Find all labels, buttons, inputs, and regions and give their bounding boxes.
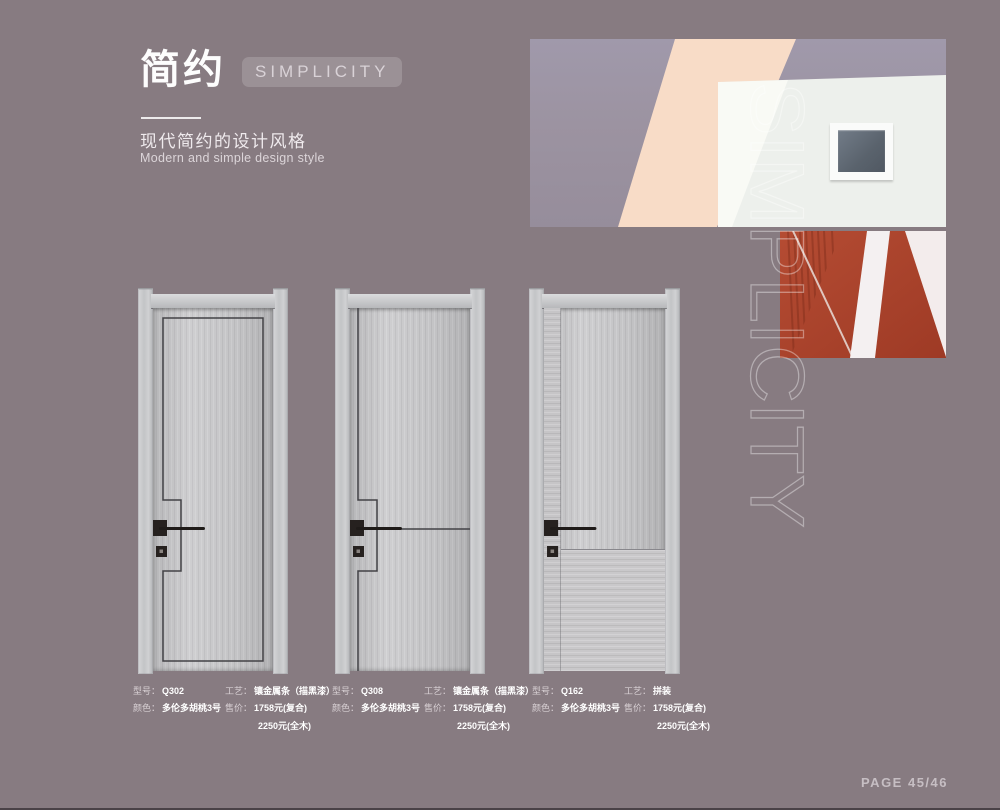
door-frame-right <box>665 288 680 674</box>
door-frame-right <box>470 288 485 674</box>
craft-label: 工艺： <box>624 686 653 697</box>
model-value: Q302 <box>162 686 225 697</box>
price-solid: 2250元(全木) <box>254 721 338 732</box>
page-number: PAGE 45/46 <box>853 775 948 790</box>
door-frame-head <box>151 294 275 308</box>
door-handle-graphic <box>544 308 665 671</box>
product-info-q302: 型号： Q302 工艺： 镶金属条（描黑漆） 颜色： 多伦多胡桃3号 售价： 1… <box>133 686 338 732</box>
door-frame-right <box>273 288 288 674</box>
door-image-q162 <box>529 288 680 674</box>
architecture-photo-main <box>530 39 946 227</box>
door-frame-head <box>542 294 667 308</box>
door-frame-left <box>529 288 544 674</box>
color-label: 颜色： <box>332 703 361 714</box>
door-leaf <box>544 308 665 671</box>
door-inlay-graphic <box>350 308 470 671</box>
craft-label: 工艺： <box>424 686 453 697</box>
color-label: 颜色： <box>133 703 162 714</box>
catalog-page: 简约 SIMPLICITY 现代简约的设计风格 Modern and simpl… <box>0 0 1000 810</box>
model-value: Q308 <box>361 686 424 697</box>
square-window <box>830 123 893 180</box>
page-title: 简约 <box>140 50 226 90</box>
door-image-q302 <box>138 288 288 674</box>
model-label: 型号： <box>332 686 361 697</box>
model-label: 型号： <box>532 686 561 697</box>
price-composite: 1758元(复合) <box>453 703 537 714</box>
door-handle-lever <box>356 527 402 530</box>
door-leaf <box>153 308 273 671</box>
craft-value: 镶金属条（描黑漆） <box>254 686 338 697</box>
door-image-q308 <box>335 288 485 674</box>
craft-value: 镶金属条（描黑漆） <box>453 686 537 697</box>
craft-value: 拼装 <box>653 686 737 697</box>
color-value: 多伦多胡桃3号 <box>162 703 225 714</box>
price-composite: 1758元(复合) <box>254 703 338 714</box>
door-frame-head <box>348 294 472 308</box>
keyhole <box>160 550 164 554</box>
keyhole <box>357 550 361 554</box>
door-inlay-graphic <box>153 308 273 671</box>
price-label: 售价： <box>424 703 453 714</box>
door-handle-lever <box>159 527 205 530</box>
price-solid: 2250元(全木) <box>453 721 537 732</box>
door-frame-left <box>138 288 153 674</box>
subtitle-chinese: 现代简约的设计风格 <box>140 127 307 152</box>
header: 简约 SIMPLICITY <box>140 50 402 90</box>
architecture-photo-detail <box>780 231 946 358</box>
door-handle-lever <box>550 527 596 530</box>
color-value: 多伦多胡桃3号 <box>561 703 624 714</box>
title-badge: SIMPLICITY <box>242 57 402 87</box>
price-label: 售价： <box>624 703 653 714</box>
window-glass <box>838 130 885 172</box>
door-frame-left <box>335 288 350 674</box>
subtitle-english: Modern and simple design style <box>140 151 325 165</box>
keyhole <box>551 550 555 554</box>
craft-label: 工艺： <box>225 686 254 697</box>
product-info-q308: 型号： Q308 工艺： 镶金属条（描黑漆） 颜色： 多伦多胡桃3号 售价： 1… <box>332 686 537 732</box>
model-label: 型号： <box>133 686 162 697</box>
price-label: 售价： <box>225 703 254 714</box>
color-value: 多伦多胡桃3号 <box>361 703 424 714</box>
door-leaf <box>350 308 470 671</box>
price-solid: 2250元(全木) <box>653 721 737 732</box>
title-divider <box>141 117 201 119</box>
price-composite: 1758元(复合) <box>653 703 737 714</box>
product-info-q162: 型号： Q162 工艺： 拼装 颜色： 多伦多胡桃3号 售价： 1758元(复合… <box>532 686 737 732</box>
color-label: 颜色： <box>532 703 561 714</box>
model-value: Q162 <box>561 686 624 697</box>
